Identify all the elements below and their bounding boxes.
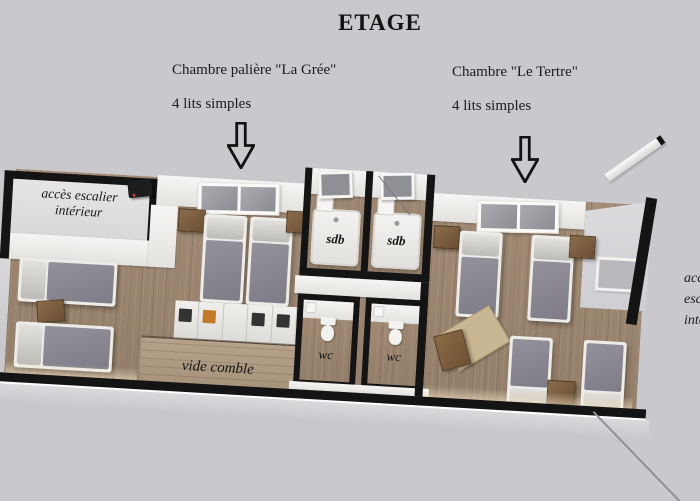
down-arrow-icon (227, 122, 255, 169)
floor-plan: accès escalier intérieur vide comble sdb… (0, 150, 700, 475)
nightstand (36, 299, 65, 323)
nightstand (178, 208, 206, 233)
bed-pillow (206, 217, 244, 240)
nightstand (433, 225, 460, 249)
bed-pillow (462, 234, 500, 257)
bed-blanket (203, 240, 243, 301)
annotation-la-gree: Chambre palière "La Grée" 4 lits simples (172, 62, 336, 130)
counter-unit (222, 303, 249, 342)
sdb-left-label: sdb (308, 230, 363, 249)
bed-blanket (458, 256, 498, 315)
mirror (318, 171, 353, 199)
floor-plan-page: { "title": "ETAGE", "annotations": { "la… (0, 0, 700, 500)
counter-unit (247, 304, 274, 343)
roof-strip-cap (656, 135, 665, 145)
stair-access-right-line1: accès (684, 268, 700, 289)
bed (455, 231, 503, 319)
bed-pillow (17, 324, 43, 365)
skylight (197, 182, 280, 216)
corner-sink (373, 306, 385, 318)
bed-pillow (534, 238, 572, 261)
bed-blanket (584, 343, 624, 392)
counter-unit (271, 306, 298, 345)
bed (200, 214, 248, 304)
room-beds-la-gree: 4 lits simples (172, 96, 336, 113)
page-title: ETAGE (300, 10, 460, 36)
wall-face (148, 205, 179, 268)
shower-drain (394, 221, 399, 226)
sink (377, 198, 395, 216)
bed-blanket (530, 261, 570, 320)
room-name-le-tertre: Chambre "Le Tertre" (452, 64, 578, 81)
appliance (203, 310, 217, 324)
counter-unit (198, 302, 225, 341)
room-name-la-gree: Chambre palière "La Grée" (172, 62, 336, 79)
bed (527, 235, 575, 323)
bed-pillow (252, 220, 290, 243)
annotation-le-tertre: Chambre "Le Tertre" 4 lits simples (452, 64, 578, 132)
bed-blanket (510, 339, 550, 388)
appliance (252, 313, 266, 327)
bed (17, 257, 117, 307)
stair-access-right-label: accès escalier intérieur (684, 268, 700, 331)
skylight (477, 200, 560, 234)
bed-pillow (20, 260, 46, 299)
counter-unit (173, 300, 200, 339)
room-beds-le-tertre: 4 lits simples (452, 98, 578, 115)
stair-access-right-line3: intérieur (684, 310, 700, 331)
corner-sink (305, 302, 317, 314)
appliance (276, 314, 290, 328)
nightstand (569, 235, 596, 259)
down-arrow-icon (511, 136, 539, 183)
roof-strip (605, 135, 666, 181)
bed-blanket (46, 262, 114, 304)
appliance (178, 308, 192, 322)
shower-drain (333, 217, 338, 222)
bed-blanket (249, 243, 289, 304)
sdb-right-label: sdb (369, 231, 424, 250)
stair-access-right-line2: escalier (684, 289, 700, 310)
